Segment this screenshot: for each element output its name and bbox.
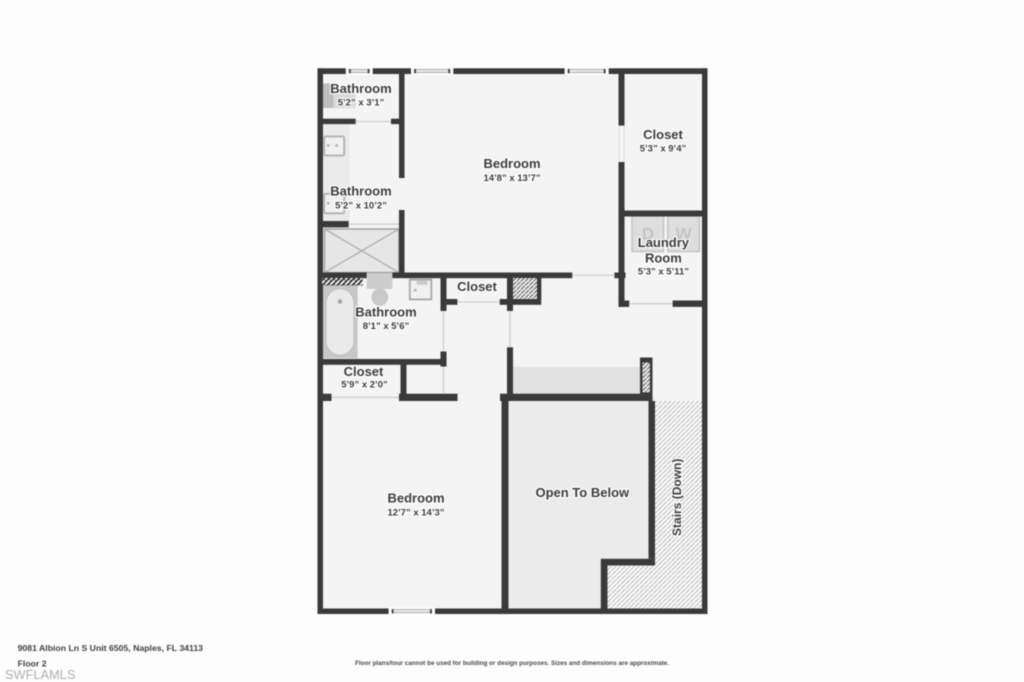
svg-text:5’3” x 5’11”: 5’3” x 5’11” [638,267,689,278]
svg-text:Open To Below: Open To Below [535,485,630,500]
svg-text:Room: Room [645,250,682,265]
svg-text:Laundry: Laundry [638,235,690,250]
svg-text:5’2” x 3’1”: 5’2” x 3’1” [338,97,385,108]
svg-text:Closet: Closet [344,364,384,379]
svg-text:5’2” x 10’2”: 5’2” x 10’2” [335,201,387,212]
svg-text:Closet: Closet [643,127,683,142]
svg-text:Bathroom: Bathroom [330,81,391,96]
svg-text:14’8” x 13’7”: 14’8” x 13’7” [483,173,540,184]
svg-text:5’3” x 9’4”: 5’3” x 9’4” [640,144,687,155]
svg-text:Stairs (Down): Stairs (Down) [670,459,684,536]
svg-text:Bathroom: Bathroom [355,305,416,320]
svg-text:Bathroom: Bathroom [330,184,391,199]
svg-text:SWFLAMLS: SWFLAMLS [5,667,75,682]
svg-text:5’9” x 2’0”: 5’9” x 2’0” [341,380,388,391]
svg-text:Closet: Closet [457,279,497,294]
svg-text:Bedroom: Bedroom [483,156,540,171]
svg-text:8’1” x 5’6”: 8’1” x 5’6” [363,321,410,332]
svg-text:9081 Albion Ln S Unit 6505, Na: 9081 Albion Ln S Unit 6505, Naples, FL 3… [18,643,204,653]
svg-text:Bedroom: Bedroom [387,490,444,505]
svg-text:12’7” x 14’3”: 12’7” x 14’3” [387,508,444,519]
svg-text:Floor plans/tour cannot be use: Floor plans/tour cannot be used for buil… [355,660,669,667]
